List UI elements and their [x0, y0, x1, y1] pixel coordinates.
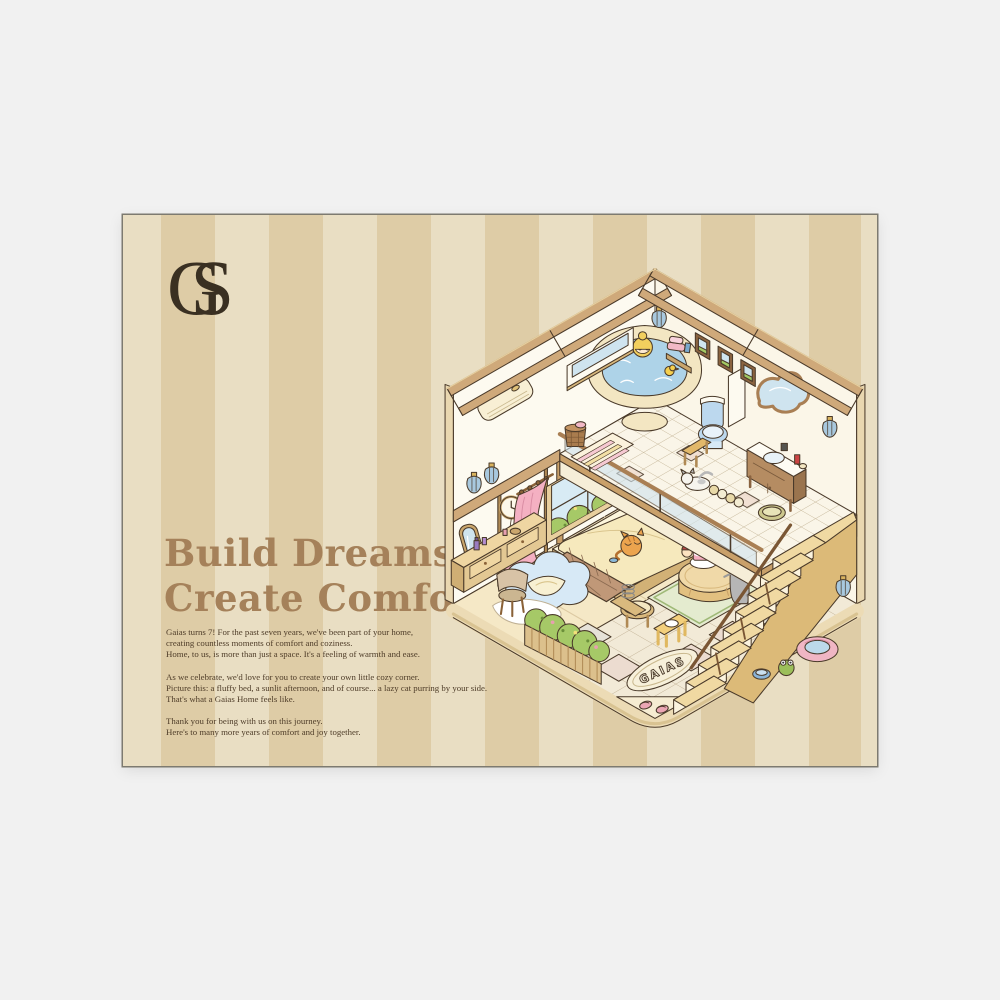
tub-step — [622, 412, 668, 431]
body-copy: Gaias turns 7! For the past seven years,… — [166, 627, 487, 750]
body-line: creating countless moments of comfort an… — [166, 638, 487, 649]
floor-basin-inner — [763, 507, 782, 516]
paragraph-thanks: Thank you for being with us on this jour… — [166, 716, 487, 738]
isometric-house-illustration: GAIAS — [443, 251, 867, 733]
right-wall-edge — [857, 384, 865, 603]
page-background: GS Build Dreams, Create Comfort Gaias tu… — [0, 0, 1000, 1000]
body-line: Gaias turns 7! For the past seven years,… — [166, 627, 487, 638]
body-line: As we celebrate, we'd love for you to cr… — [166, 672, 487, 683]
gaias-monogram-logo: GS — [167, 249, 234, 327]
body-line: Home, to us, is more than just a space. … — [166, 649, 487, 660]
logo-letter-s: S — [191, 244, 234, 331]
frog-pot — [779, 660, 795, 676]
body-line: Picture this: a fluffy bed, a sunlit aft… — [166, 683, 487, 694]
body-line: That's what a Gaias Home feels like. — [166, 694, 487, 705]
body-line: Here's to many more years of comfort and… — [166, 727, 487, 738]
vanity-chair — [497, 569, 528, 616]
paragraph-anniversary: Gaias turns 7! For the past seven years,… — [166, 627, 487, 661]
pet-bowl — [753, 669, 771, 679]
pet-bed — [797, 637, 838, 662]
paragraph-celebrate: As we celebrate, we'd love for you to cr… — [166, 672, 487, 706]
body-line: Thank you for being with us on this jour… — [166, 716, 487, 727]
poster: GS Build Dreams, Create Comfort Gaias tu… — [123, 215, 877, 766]
towel-basket — [565, 422, 586, 447]
